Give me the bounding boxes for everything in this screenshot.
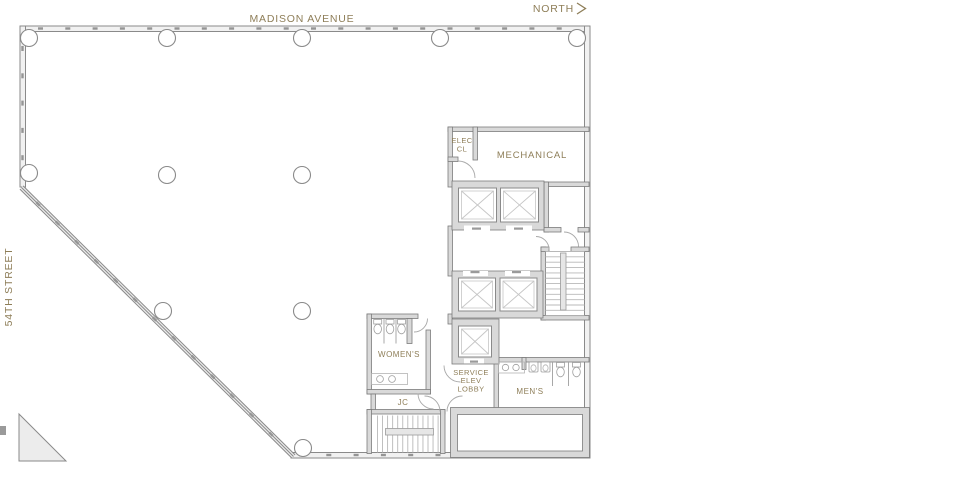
toilet-icon <box>557 367 565 377</box>
elevator-bank-2 <box>452 271 543 318</box>
vestibule-bottom-wall <box>578 228 589 233</box>
wall-tick <box>21 73 23 78</box>
sink-icon <box>513 364 519 370</box>
wall-tick <box>21 155 23 160</box>
room-label-service-elev-lobby: LOBBY <box>457 385 484 394</box>
building-outline <box>20 26 590 458</box>
stair-top-wall <box>541 247 549 252</box>
wall-tick <box>21 46 23 51</box>
wall-tick <box>408 454 413 456</box>
exterior-wall-diagonal-edge <box>23 186 295 455</box>
north-label: NORTH <box>533 3 574 15</box>
stairB-right-wall <box>441 410 446 454</box>
room-label-jc: JC <box>398 398 409 407</box>
urinal-icon <box>529 362 538 372</box>
room-label-elec-closet: CL <box>457 145 467 154</box>
stair-rail <box>561 253 567 310</box>
wall-tick <box>436 454 441 456</box>
wall-tick <box>338 27 343 29</box>
toilet-icon <box>374 324 382 334</box>
sink-icon <box>502 364 508 370</box>
womens-top-wall <box>367 314 418 319</box>
room-label-mens: MEN'S <box>516 387 543 396</box>
core-left-wall <box>448 226 453 276</box>
wall-tick <box>284 27 289 29</box>
wall-tick <box>381 454 386 456</box>
mens-fixture-stub-wall <box>522 358 526 370</box>
mechanical-top-wall <box>448 127 589 132</box>
stair-bottom-wall <box>541 316 589 321</box>
toilet-icon <box>374 320 382 325</box>
elevator-door <box>471 271 480 273</box>
elevator-door <box>514 228 523 230</box>
elec-closet-right-wall <box>473 127 478 160</box>
column-marker <box>294 30 311 47</box>
toilet-icon <box>557 363 565 368</box>
bottom-right-room <box>451 408 590 458</box>
wall-tick <box>475 27 480 29</box>
urinal-icon <box>541 362 550 372</box>
mens-left-wall <box>494 358 499 412</box>
mens-top-wall <box>494 358 589 363</box>
wall-tick <box>326 454 331 456</box>
edge-mark <box>0 426 6 435</box>
wall-tick <box>38 27 43 29</box>
wall-tick <box>502 27 507 29</box>
toilet-icon <box>398 324 406 334</box>
elevator-door <box>470 361 478 363</box>
wall-tick <box>202 27 207 29</box>
wall-tick <box>93 27 98 29</box>
wall-tick <box>354 454 359 456</box>
column-marker <box>294 303 311 320</box>
stairB-top-wall <box>367 410 445 415</box>
column-marker <box>159 167 176 184</box>
toilet-icon <box>386 320 394 325</box>
wall-tick <box>420 27 425 29</box>
exterior-wall-diagonal-edge <box>20 189 292 458</box>
floor-plan-page: MADISON AVENUE 54TH STREET NORTH ELEC CL… <box>0 0 971 478</box>
sink-icon <box>389 376 396 383</box>
wall-tick <box>366 27 371 29</box>
womens-bottom-wall <box>367 390 431 395</box>
door-arc-elec-closet <box>458 161 475 178</box>
wall-tick <box>311 27 316 29</box>
wall-tick <box>229 27 234 29</box>
floor-plan-drawing: MADISON AVENUE 54TH STREET NORTH ELEC CL… <box>0 0 971 478</box>
elec-closet-bottom-wall <box>448 157 458 162</box>
door-arc-vestibule <box>564 232 579 247</box>
column-marker <box>294 167 311 184</box>
toilet-icon <box>386 324 394 334</box>
column-marker <box>569 30 586 47</box>
door-arc-womens <box>414 319 428 333</box>
sink-icon <box>377 376 384 383</box>
elevator-door <box>512 271 521 273</box>
mens-fixtures <box>499 362 581 386</box>
street-label-madison-avenue: MADISON AVENUE <box>250 13 355 25</box>
street-label-54th-street: 54TH STREET <box>3 248 15 327</box>
key-plan-triangle <box>19 414 66 461</box>
wall-tick <box>147 27 152 29</box>
wall-tick <box>557 27 562 29</box>
stair-top-wall <box>571 247 589 252</box>
womens-right-wall <box>426 330 431 394</box>
wall-tick <box>65 27 70 29</box>
column-marker <box>295 440 312 457</box>
exterior-wall-right <box>585 26 591 458</box>
mechanical-bottom-wall <box>544 182 589 187</box>
service-elevator <box>452 319 499 364</box>
room-label-womens: WOMEN'S <box>378 350 420 359</box>
stairs-bottom <box>378 416 439 453</box>
elevator-door <box>472 228 481 230</box>
wall-tick <box>393 27 398 29</box>
toilet-icon <box>573 367 581 377</box>
wall-tick <box>120 27 125 29</box>
vestibule-left-wall <box>544 182 549 232</box>
wall-tick <box>448 27 453 29</box>
wall-tick <box>529 27 534 29</box>
column-marker <box>21 165 38 182</box>
column-marker <box>159 30 176 47</box>
wall-tick <box>175 27 180 29</box>
womens-left-wall <box>367 314 372 394</box>
womens-stall-end-wall <box>407 319 412 344</box>
toilet-icon <box>573 363 581 368</box>
wall-tick <box>21 128 23 133</box>
stairs-right <box>546 252 585 316</box>
column-grid <box>21 30 586 457</box>
column-marker <box>155 303 172 320</box>
north-arrow-icon <box>577 3 586 14</box>
room-label-mechanical: MECHANICAL <box>497 150 567 161</box>
column-marker <box>21 30 38 47</box>
wall-tick <box>21 101 23 106</box>
column-marker <box>432 30 449 47</box>
stairB-left-wall <box>367 410 372 454</box>
elevator-bank-1 <box>452 181 544 231</box>
room-interior <box>458 415 583 452</box>
wall-tick <box>256 27 261 29</box>
toilet-icon <box>398 320 406 325</box>
stair-rail <box>386 429 434 436</box>
vestibule-bottom-wall <box>544 228 561 233</box>
